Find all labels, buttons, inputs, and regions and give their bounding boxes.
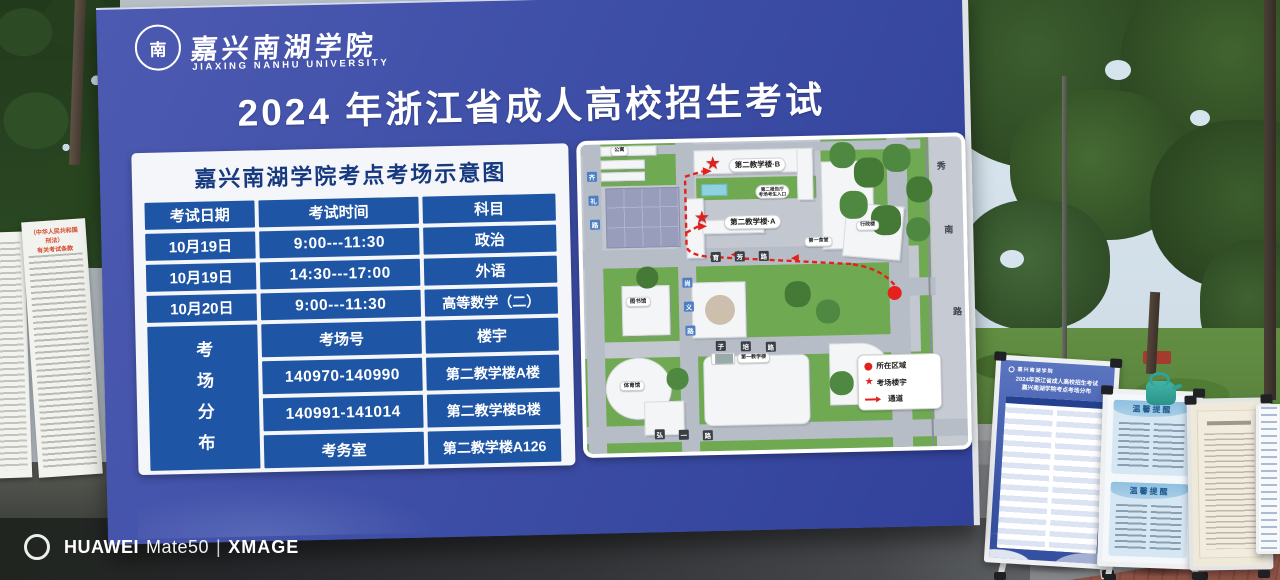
stand-partial [1256, 404, 1280, 554]
road-char: 路 [759, 251, 769, 261]
campus-map-panel: ★ ★ 第二教学楼·B 第二教学楼·A 第二报告厅 考场考生入口 第一食堂 第一… [576, 132, 972, 458]
reminder-text-lines [1115, 504, 1148, 551]
poster-logo-text: 嘉兴南湖学院 [1017, 366, 1053, 375]
legend-label: 通道 [888, 393, 903, 404]
stand-foot [994, 572, 1006, 580]
distribution-cell: 140991-141014 [263, 395, 424, 432]
schedule-panel: 嘉兴南湖学院考点考场示意图 考试日期 考试时间 科目 10月19日 9:00--… [131, 143, 575, 475]
frame-clamp [994, 351, 1007, 361]
camera-watermark: HUAWEI Mate50 | XMAGE [24, 534, 299, 560]
document-paper [1197, 409, 1264, 558]
legend-current-area: 所在区域 [864, 359, 934, 372]
label-first-teaching: 第一教学楼 [737, 353, 770, 363]
road-char: 礼 [588, 196, 598, 206]
header-subject: 科目 [422, 194, 556, 224]
room-allocation-poster: 嘉兴南湖学院 2024年浙江省成人高校招生考试 嘉兴南湖学院考点考场分布 [989, 360, 1115, 565]
legend-passage: 通道 [865, 392, 935, 405]
frame-clamp [1260, 394, 1272, 403]
legend-exam-building: ★ 考场楼宇 [865, 376, 935, 389]
road-char: 路 [703, 430, 713, 440]
placard-text-lines [29, 252, 98, 469]
distribution-label: 考场分布 [147, 324, 260, 470]
light-pole [1062, 76, 1067, 372]
label-apartment: 公寓 [610, 146, 628, 156]
reminder-title: 温馨提醒 [1110, 482, 1189, 501]
reminder-poster: 温馨提醒 温馨提醒 [1102, 393, 1198, 564]
distribution-table: 考场分布 考场号 楼宇 140970-140990 第二教学楼A楼 140991… [147, 318, 563, 471]
header-building: 楼宇 [425, 318, 559, 354]
tiny-label-box [711, 353, 735, 366]
passage-arrow-icon [865, 396, 884, 402]
entrance-line2: 考场考生入口 [758, 191, 786, 197]
schedule-cell: 9:00---11:30 [259, 228, 420, 259]
header-exam-date: 考试日期 [144, 200, 255, 229]
map-legend: 所在区域 ★ 考场楼宇 通道 [857, 353, 942, 411]
label-entrance: 第二报告厅 考场考生入口 [755, 184, 789, 199]
poster-table-header [1006, 396, 1106, 409]
document-title-line [1207, 421, 1250, 426]
stand-foot [1192, 572, 1204, 580]
reminder-panel-1: 温馨提醒 [1111, 400, 1192, 477]
label-building-a: 第二教学楼·A [724, 215, 782, 231]
distribution-cell: 第二教学楼A楼 [426, 355, 560, 391]
tree-canopy [960, 200, 1110, 330]
road-char: 子 [716, 341, 726, 351]
distribution-cell: 第二教学楼A126 [428, 429, 562, 465]
road-char: 路 [766, 342, 776, 352]
sky-gap [1000, 250, 1024, 268]
watermark-model: Mate50 [146, 537, 209, 558]
reminder-text-lines [1152, 423, 1185, 470]
poster-logo: 嘉兴南湖学院 [1008, 365, 1053, 375]
stand-foot [1258, 570, 1270, 578]
distribution-cell: 140970-140990 [262, 358, 423, 395]
schedule-cell: 10月20日 [147, 293, 258, 322]
schedule-table: 考试日期 考试时间 科目 10月19日 9:00---11:30 政治 10月1… [144, 194, 560, 323]
stand-foot [1104, 574, 1116, 580]
tree-trunk [1264, 0, 1276, 400]
watermark-separator: | [216, 537, 221, 558]
road-char: 弘 [655, 429, 665, 439]
sky-gap [1105, 60, 1131, 80]
exam-title: 2024 年浙江省成人高校招生考试 [98, 66, 965, 140]
schedule-cell: 10月19日 [146, 262, 257, 291]
road-char: 秀 [937, 159, 946, 172]
partial-poster [1259, 407, 1279, 551]
document-text-lines [1204, 433, 1256, 550]
label-gym: 体育馆 [620, 381, 645, 392]
header-room-number: 考场号 [261, 321, 422, 358]
watermark-brand: HUAWEI [64, 537, 139, 558]
billboard: 南 嘉兴南湖学院 JIAXING NANHU UNIVERSITY 2024 年… [96, 0, 980, 545]
schedule-cell: 14:30---17:00 [260, 259, 421, 290]
road-char: 路 [590, 220, 600, 230]
watermark-engine: XMAGE [228, 537, 299, 558]
poster-table [997, 396, 1106, 554]
label-library: 图书馆 [626, 297, 651, 308]
frame-clamp [1110, 358, 1123, 368]
exam-building-star-icon: ★ [694, 208, 711, 226]
campus-map: ★ ★ 第二教学楼·B 第二教学楼·A 第二报告厅 考场考生入口 第一食堂 第一… [580, 136, 968, 454]
legend-label: 考场楼宇 [877, 376, 907, 388]
reminder-panel-2: 温馨提醒 [1108, 482, 1189, 559]
frame-clamp [1184, 396, 1196, 405]
label-building-b: 第二教学楼·B [729, 157, 787, 173]
poster-title: 2024年浙江省成人高校招生考试 嘉兴南湖学院考点考场分布 [1003, 375, 1110, 398]
road-char: 路 [953, 304, 962, 317]
schedule-cell: 政治 [423, 225, 557, 255]
road-char: 南 [944, 223, 953, 236]
road-char: 义 [684, 302, 694, 312]
schedule-cell: 外语 [424, 256, 558, 286]
label-admin: 行政楼 [856, 220, 879, 230]
road-char: 育 [711, 252, 721, 262]
road-char: 尚 [682, 278, 692, 288]
camera-ring-icon [24, 534, 50, 560]
placard-text-lines [0, 242, 28, 471]
road-char: 培 [741, 341, 751, 351]
frame-clamp [1101, 385, 1113, 394]
distribution-cell: 第二教学楼B楼 [427, 392, 561, 428]
road-char: 齐 [587, 172, 597, 182]
schedule-cell: 高等数学（二） [424, 287, 558, 317]
legend-label: 所在区域 [876, 360, 906, 372]
label-canteen: 第一食堂 [804, 236, 832, 246]
schedule-panel-title: 嘉兴南湖学院考点考场示意图 [144, 154, 558, 195]
emblem-char: 南 [149, 35, 167, 60]
current-area-dot-icon [864, 362, 872, 370]
schedule-cell: 9:00---11:30 [261, 290, 422, 321]
road-char: 芳 [735, 251, 745, 261]
header-exam-time: 考试时间 [258, 197, 419, 228]
photo-stage: （中华人民共和国刑法） 有关考试条款 嘉兴南湖学院 2024年浙江省成人高校招生… [0, 0, 1280, 580]
exam-building-star-icon: ★ [704, 154, 721, 172]
schedule-cell: 10月19日 [145, 231, 256, 260]
teal-kettle [1146, 381, 1176, 405]
exam-building-star-icon: ★ [865, 377, 873, 387]
reminder-text-lines [1117, 422, 1150, 469]
watermark-text: HUAWEI Mate50 | XMAGE [64, 537, 299, 558]
road-char: 路 [685, 325, 695, 335]
distribution-cell: 考务室 [264, 432, 425, 469]
poster-emblem-icon [1008, 366, 1014, 372]
reminder-text-lines [1149, 505, 1182, 552]
university-emblem-icon: 南 [134, 24, 181, 71]
road-char: 一 [679, 430, 689, 440]
